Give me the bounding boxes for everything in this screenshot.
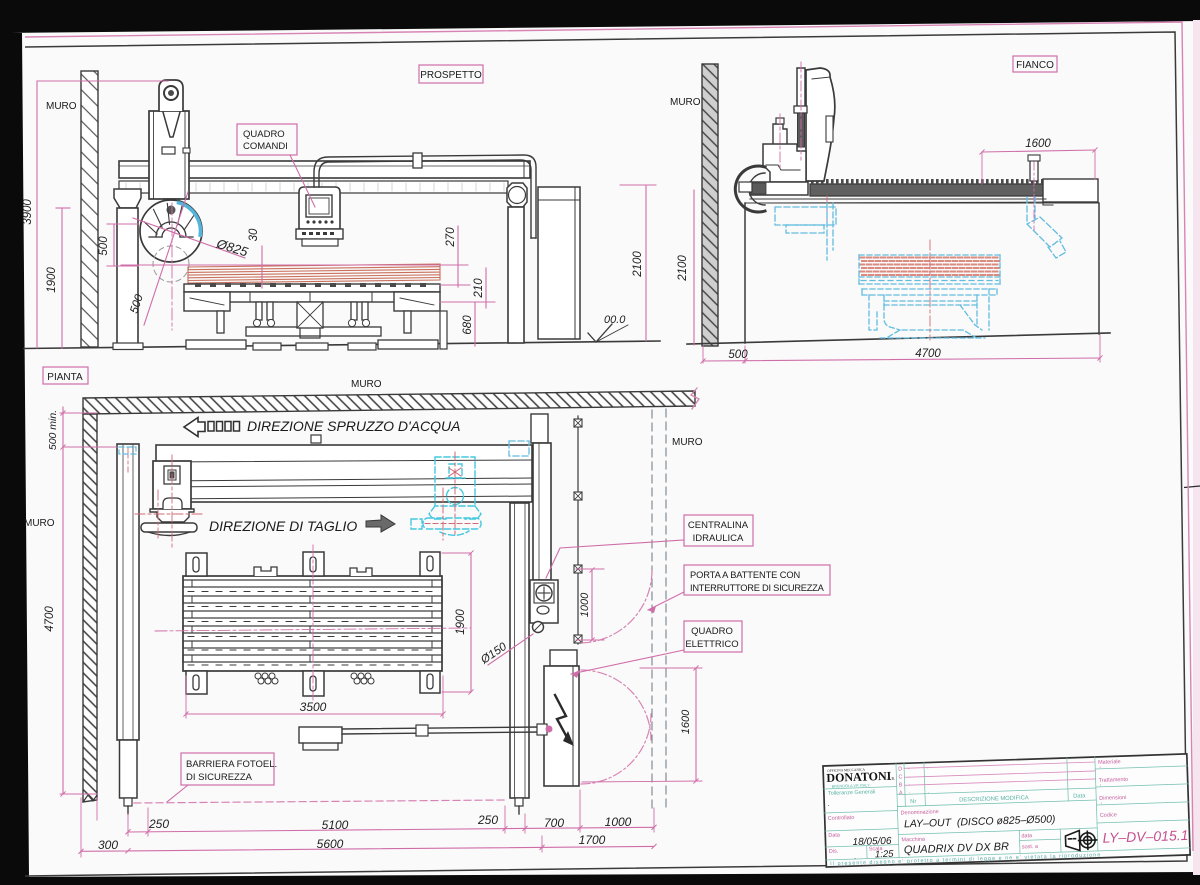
svg-text:250: 250 <box>477 813 498 827</box>
svg-text:250: 250 <box>148 817 169 831</box>
svg-text:.: . <box>827 801 829 808</box>
svg-text:MURO: MURO <box>351 379 382 390</box>
svg-text:s.a.s.: s.a.s. <box>883 776 895 782</box>
svg-text:Data: Data <box>828 832 841 838</box>
svg-text:5100: 5100 <box>322 818 349 832</box>
svg-text:INTERRUTTORE DI SICUREZZA: INTERRUTTORE DI SICUREZZA <box>690 583 825 593</box>
svg-text:680: 680 <box>462 315 474 335</box>
svg-text:PIANTA: PIANTA <box>47 372 83 383</box>
svg-text:Dis.: Dis. <box>829 849 839 855</box>
svg-text:.: . <box>928 780 930 786</box>
svg-text:DIREZIONE SPRUZZO D'ACQUA: DIREZIONE SPRUZZO D'ACQUA <box>247 418 460 434</box>
svg-text:MURO: MURO <box>46 101 77 112</box>
svg-text:C: C <box>898 774 902 780</box>
svg-text:1700: 1700 <box>579 833 606 847</box>
svg-text:Dimensioni: Dimensioni <box>1099 795 1126 802</box>
svg-text:30: 30 <box>248 228 260 241</box>
svg-text:Nr: Nr <box>910 799 916 805</box>
svg-text:DI SICUREZZA: DI SICUREZZA <box>186 772 253 783</box>
svg-text:Macchina: Macchina <box>901 837 926 844</box>
svg-text:Codice: Codice <box>1100 812 1117 819</box>
svg-text:00.0: 00.0 <box>604 314 626 326</box>
svg-text:sost. a: sost. a <box>1022 844 1039 851</box>
svg-text:Controllato: Controllato <box>828 815 855 822</box>
svg-text:QUADRO: QUADRO <box>243 129 285 140</box>
svg-text:.: . <box>927 773 929 779</box>
svg-text:data: data <box>1021 833 1033 839</box>
svg-text:A: A <box>899 790 903 796</box>
svg-text:.: . <box>927 765 929 771</box>
svg-text:210: 210 <box>473 278 485 299</box>
svg-text:LY–DV–015.1: LY–DV–015.1 <box>1102 827 1188 846</box>
svg-text:B: B <box>899 782 903 788</box>
svg-text:MURO: MURO <box>24 518 55 529</box>
svg-text:PORTA A BATTENTE CON: PORTA A BATTENTE CON <box>690 570 800 580</box>
svg-text:QUADRO: QUADRO <box>691 626 733 637</box>
svg-text:1000: 1000 <box>579 592 591 617</box>
svg-text:.: . <box>928 788 930 794</box>
svg-text:D: D <box>898 766 902 772</box>
svg-text:2100: 2100 <box>677 255 689 282</box>
svg-text:4700: 4700 <box>44 606 56 632</box>
svg-text:500: 500 <box>728 349 748 361</box>
svg-text:BARRIERA FOTOEL.: BARRIERA FOTOEL. <box>186 759 277 770</box>
svg-text:2100: 2100 <box>632 251 644 278</box>
svg-text:3500: 3500 <box>300 700 327 714</box>
svg-text:ELETTRICO: ELETTRICO <box>685 639 738 650</box>
svg-text:300: 300 <box>98 838 118 852</box>
svg-text:1000: 1000 <box>605 815 632 829</box>
svg-text:Materiale: Materiale <box>1098 759 1121 766</box>
svg-text:Trattamento: Trattamento <box>1099 777 1129 784</box>
svg-text:FIANCO: FIANCO <box>1016 60 1054 71</box>
svg-text:MURO: MURO <box>672 437 703 448</box>
svg-text:500: 500 <box>98 236 110 256</box>
svg-text:Data: Data <box>1073 793 1086 799</box>
svg-text:IDRAULICA: IDRAULICA <box>693 533 744 544</box>
svg-text:1900: 1900 <box>46 267 58 293</box>
svg-text:5600: 5600 <box>317 837 344 851</box>
svg-text:CENTRALINA: CENTRALINA <box>688 520 749 531</box>
svg-text:MURO: MURO <box>670 97 701 108</box>
svg-text:DIREZIONE DI TAGLIO: DIREZIONE DI TAGLIO <box>209 518 357 534</box>
svg-text:4700: 4700 <box>915 348 941 360</box>
svg-text:270: 270 <box>445 227 457 248</box>
svg-text:COMANDI: COMANDI <box>243 141 288 152</box>
svg-text:1900: 1900 <box>455 609 467 635</box>
svg-text:3900: 3900 <box>22 199 34 225</box>
svg-text:700: 700 <box>544 816 564 830</box>
svg-text:1600: 1600 <box>1025 138 1051 150</box>
svg-text:1600: 1600 <box>680 709 692 734</box>
svg-text:DONATONI: DONATONI <box>826 769 892 785</box>
svg-text:Denominazione: Denominazione <box>901 809 939 816</box>
svg-text:500 min.: 500 min. <box>47 410 59 450</box>
svg-text:PROSPETTO: PROSPETTO <box>420 70 482 81</box>
